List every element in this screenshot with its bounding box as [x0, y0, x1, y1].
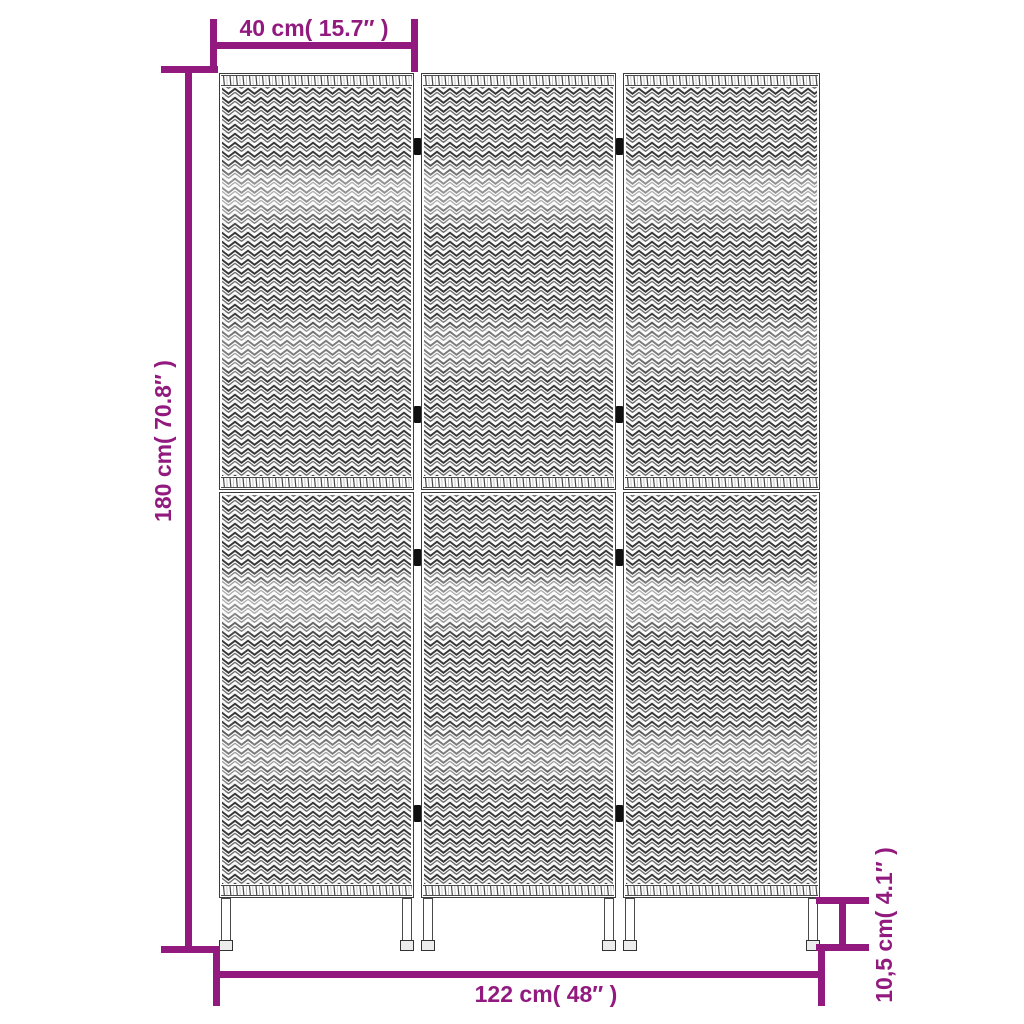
weave-texture	[626, 87, 817, 476]
wrapped-edge-band	[423, 885, 614, 896]
dimension-line-leg-height	[839, 897, 846, 951]
wrapped-edge-band	[625, 75, 818, 86]
dimension-tick	[161, 946, 218, 953]
divider-panel-3	[623, 73, 820, 898]
panel-leg	[423, 898, 433, 941]
dimension-label-leg-height: 10,5 cm( 4.1″ )	[871, 847, 897, 1003]
wrapped-edge-band	[625, 885, 818, 896]
divider-panel-1	[219, 73, 414, 898]
hinge	[414, 549, 421, 566]
divider-panel-2	[421, 73, 616, 898]
panel-leg	[604, 898, 614, 941]
dimension-line-total-width	[213, 971, 825, 978]
panel-3-bottom-section	[623, 492, 820, 898]
panel-2-bottom-section	[421, 492, 616, 898]
hinge	[616, 138, 623, 155]
wrapped-edge-band	[423, 477, 614, 488]
weave-texture	[222, 495, 411, 884]
wrapped-edge-band	[625, 477, 818, 488]
hinge	[414, 138, 421, 155]
weave-texture	[626, 495, 817, 884]
dimension-label-panel-width: 40 cm( 15.7″ )	[239, 15, 388, 41]
dimension-line-height	[185, 66, 192, 953]
wrapped-edge-band	[221, 885, 412, 896]
panel-leg	[221, 898, 231, 941]
wrapped-edge-band	[221, 75, 412, 86]
panel-1-top-section	[219, 73, 414, 490]
diagram-canvas: 40 cm( 15.7″ ) 180 cm( 70.8″ ) 122 cm( 4…	[0, 0, 1024, 1024]
hinge	[414, 805, 421, 822]
dimension-line-panel-width	[210, 42, 418, 49]
hinge	[616, 406, 623, 423]
panel-2-top-section	[421, 73, 616, 490]
hinge	[616, 549, 623, 566]
panel-1-bottom-section	[219, 492, 414, 898]
weave-texture	[424, 87, 613, 476]
panel-leg	[625, 898, 635, 941]
weave-texture	[424, 495, 613, 884]
dimension-label-height: 180 cm( 70.8″ )	[150, 360, 176, 522]
panel-3-top-section	[623, 73, 820, 490]
weave-texture	[222, 87, 411, 476]
panel-leg	[808, 898, 818, 941]
hinge	[414, 406, 421, 423]
dimension-tick	[816, 944, 869, 951]
hinge	[616, 805, 623, 822]
wrapped-edge-band	[221, 477, 412, 488]
dimension-label-total-width: 122 cm( 48″ )	[475, 981, 618, 1007]
panel-leg	[402, 898, 412, 941]
wrapped-edge-band	[423, 75, 614, 86]
